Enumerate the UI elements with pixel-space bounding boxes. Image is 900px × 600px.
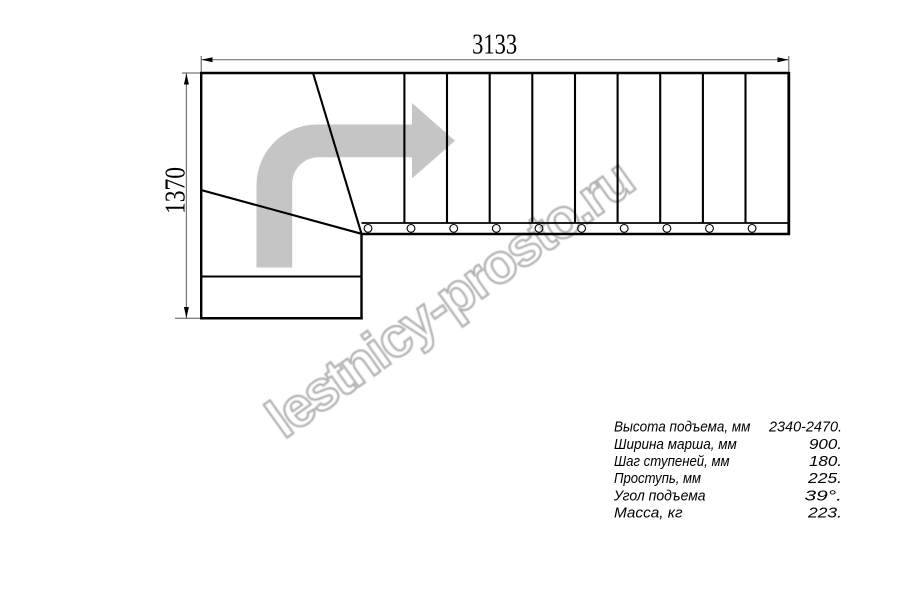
svg-text:39°.: 39°. [805, 488, 843, 504]
svg-text:180.: 180. [809, 454, 842, 470]
svg-text:Шаг ступеней, мм: Шаг ступеней, мм [614, 454, 730, 470]
svg-text:Ширина марша, мм: Ширина марша, мм [614, 437, 737, 453]
svg-text:Проступь, мм: Проступь, мм [614, 471, 701, 487]
svg-text:3133: 3133 [472, 29, 517, 61]
svg-text:900.: 900. [809, 437, 842, 453]
svg-text:225.: 225. [807, 471, 842, 487]
svg-text:1370: 1370 [160, 167, 192, 214]
svg-text:Высота подъема, мм: Высота подъема, мм [614, 420, 750, 436]
svg-text:2340-2470.: 2340-2470. [768, 420, 842, 436]
svg-text:Угол подъема: Угол подъема [613, 488, 706, 504]
svg-text:Масса, кг: Масса, кг [614, 506, 683, 522]
svg-text:223.: 223. [807, 506, 842, 522]
